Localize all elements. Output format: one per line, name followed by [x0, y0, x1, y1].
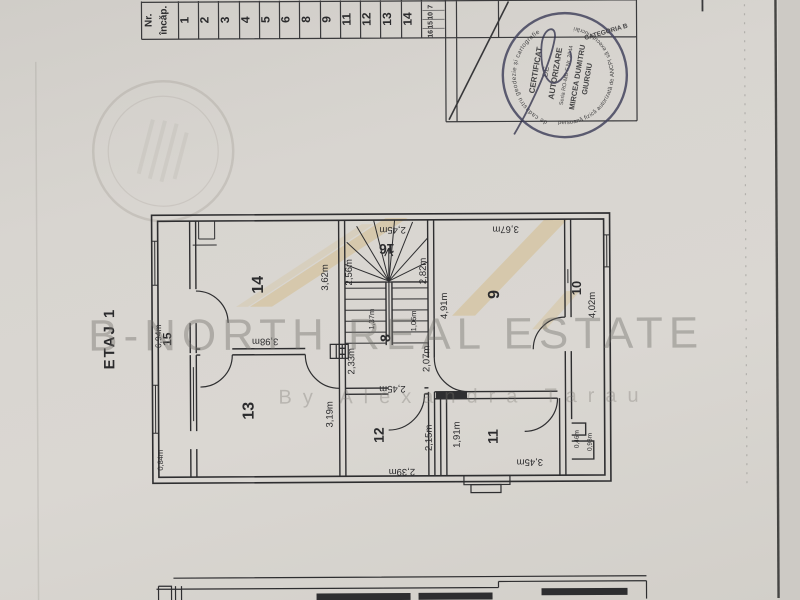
- room-label: 13: [241, 402, 258, 420]
- dim-label: 2,15m: [424, 425, 435, 452]
- table-cell: 11: [339, 13, 353, 26]
- dim-label: 6,94m: [153, 324, 163, 348]
- dim-label: 2,45m: [379, 383, 406, 394]
- page-fold-line: [775, 0, 778, 598]
- scanned-floor-plan-page: Nr. încăp. 1 2 3 4 5 6 8 9 11 12 13 14 7…: [0, 0, 800, 600]
- surveyor-stamp: de cadastru geodezie și cartografie pers…: [493, 3, 637, 148]
- dim-label: 2,82m: [418, 258, 429, 285]
- table-cell: 2: [198, 16, 212, 23]
- page-artifacts: [35, 0, 778, 600]
- table-cell: 12: [359, 12, 373, 26]
- table-cell: 13: [380, 12, 394, 26]
- room-label: 16: [379, 241, 395, 257]
- room-label: 10: [569, 281, 584, 296]
- dim-label: 1,91m: [452, 421, 463, 448]
- table-header: Nr.: [143, 13, 154, 27]
- room-label: 14: [250, 276, 267, 294]
- table-cell: 5: [259, 16, 273, 23]
- dim-label: 3,98m: [252, 336, 279, 347]
- table-cell: 3: [218, 16, 232, 23]
- left-crease-line: [36, 62, 39, 600]
- room-label: 12: [371, 427, 387, 443]
- table-cell-small: 16: [428, 30, 435, 38]
- faint-crease-line: [744, 4, 747, 488]
- room-label: 8: [377, 334, 393, 342]
- dim-label: 4,91m: [439, 292, 450, 319]
- window-bay: [471, 484, 501, 492]
- table-cancel-slash: [448, 1, 509, 119]
- table-cell: 4: [239, 16, 253, 23]
- table-cell: 6: [279, 16, 293, 23]
- floor-plan-drawing: Nr. încăp. 1 2 3 4 5 6 8 9 11 12 13 14 7…: [0, 0, 800, 600]
- dim-label: 2,33m: [346, 348, 357, 375]
- dim-label: 0,93m: [587, 433, 594, 451]
- logo-band-icon: [532, 291, 580, 329]
- table-cell-small: 10: [427, 12, 434, 20]
- dim-label: 0,46m: [574, 430, 581, 448]
- table-header: încăp.: [158, 6, 169, 36]
- table-cell: 14: [400, 12, 414, 26]
- dim-label: 2,45m: [379, 224, 406, 235]
- window-bay: [464, 475, 510, 484]
- dim-label: 3,45m: [517, 456, 544, 467]
- room-label: 11: [485, 429, 501, 444]
- dim-label: 2,56m: [344, 259, 355, 286]
- dim-label: 2,07m: [421, 346, 432, 373]
- room-label: 9: [486, 290, 503, 299]
- table-cell-small: 7: [427, 5, 434, 9]
- dim-label: 1,06m: [409, 310, 418, 331]
- dim-label: 3,62m: [320, 264, 331, 291]
- scan-content: Nr. încăp. 1 2 3 4 5 6 8 9 11 12 13 14 7…: [0, 0, 800, 600]
- table-cell: 9: [320, 16, 334, 23]
- table-cell-small: 15: [428, 21, 435, 29]
- stamp-category-text: CATEGORIA B: [584, 23, 629, 42]
- solid-wall-segment: [436, 392, 466, 399]
- dim-label: 4,02m: [587, 292, 598, 319]
- partial-plan-below: [156, 576, 646, 600]
- dim-label: 0,84m: [156, 450, 165, 471]
- faint-stamp-icon: [93, 81, 234, 222]
- dim-label: 2,39m: [389, 466, 416, 477]
- table-cell: 1: [178, 16, 192, 23]
- floor-title: ETAJ 1: [101, 308, 118, 370]
- dim-label: 3,67m: [492, 223, 519, 234]
- dim-label: 1,37m: [367, 309, 376, 330]
- dim-label: 3,19m: [325, 401, 336, 428]
- table-cell: 8: [299, 16, 313, 23]
